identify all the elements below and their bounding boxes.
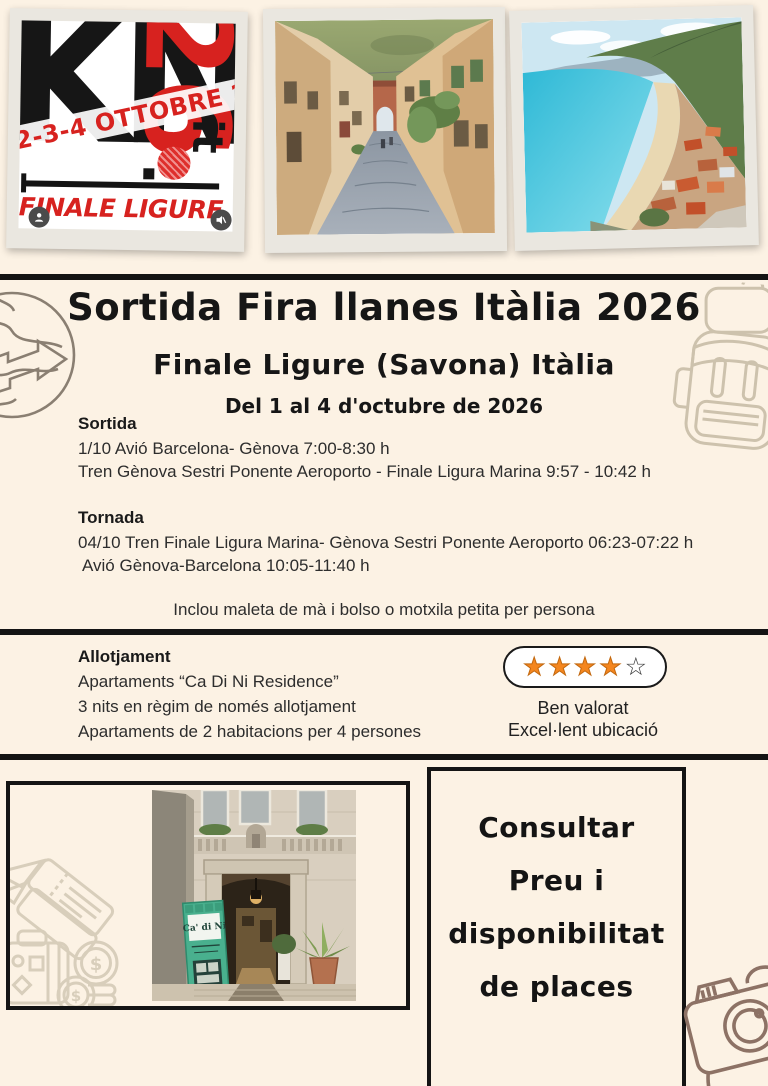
logo-location-text: FINALE LIGURE (SV) xyxy=(19,192,236,225)
street-photo xyxy=(275,19,495,235)
allotjament-heading: Allotjament xyxy=(78,647,171,667)
polaroid-logo: KN 26 it 2-3-4 OTTOBRE 2026 FINALE LIGUR… xyxy=(6,8,248,252)
dollar-icon: $ xyxy=(90,954,103,975)
luggage-note: Inclou maleta de mà i bolso o motxila pe… xyxy=(0,600,768,620)
divider-top xyxy=(0,274,768,280)
sortida-line-1: 1/10 Avió Barcelona- Gènova 7:00-8:30 h xyxy=(78,439,390,459)
polaroid-street xyxy=(263,7,507,253)
page-title: Sortida Fira llanes Itàlia 2026 xyxy=(0,286,768,329)
rating-caption-2: Excel·lent ubicació xyxy=(493,720,673,741)
tickets-money-doodle-icon: $ $ xyxy=(6,847,128,1010)
rating-pill: ★★★★☆ xyxy=(503,646,667,688)
cta-line-4: de places xyxy=(431,970,682,1003)
rating-stars: ★★★★☆ xyxy=(523,655,647,680)
tornada-line-2: Avió Gènova-Barcelona 10:05-11:40 h xyxy=(82,556,370,576)
hotel-entrance-photo: Ca' di Ni xyxy=(152,790,356,1001)
divider-middle xyxy=(0,629,768,635)
cta-line-2: Preu i xyxy=(431,864,682,897)
star-filled-icon: ★ xyxy=(599,655,621,680)
polaroid-beach xyxy=(509,5,759,251)
cta-line-1: Consultar xyxy=(431,811,682,844)
allotjament-line-2: 3 nits en règim de només allotjament xyxy=(78,697,356,717)
tornada-heading: Tornada xyxy=(78,508,144,528)
dollar-icon: $ xyxy=(71,987,81,1005)
knit-fair-logo: KN 26 it 2-3-4 OTTOBRE 2026 FINALE LIGUR… xyxy=(18,20,235,231)
tornada-line-1: 04/10 Tren Finale Ligura Marina- Gènova … xyxy=(78,533,693,553)
star-empty-icon: ☆ xyxy=(625,655,647,680)
page-subtitle: Finale Ligure (Savona) Itàlia xyxy=(0,348,768,381)
sortida-line-2: Tren Gènova Sestri Ponente Aeroporto - F… xyxy=(78,462,651,482)
beach-photo xyxy=(521,17,746,232)
sortida-heading: Sortida xyxy=(78,414,137,434)
speaker-muted-icon xyxy=(210,209,231,230)
star-filled-icon: ★ xyxy=(523,655,545,680)
divider-bottom xyxy=(0,754,768,760)
logo-it-letters: it xyxy=(186,119,229,154)
rating-caption-1: Ben valorat xyxy=(493,698,673,719)
allotjament-line-1: Apartaments “Ca Di Ni Residence” xyxy=(78,672,339,692)
allotjament-line-3: Apartaments de 2 habitacions per 4 perso… xyxy=(78,722,421,742)
star-filled-icon: ★ xyxy=(548,655,570,680)
person-icon xyxy=(28,206,49,227)
logo-dot xyxy=(143,168,154,179)
hotel-photo-box: $ $ xyxy=(6,781,410,1010)
cta-line-3: disponibilitat xyxy=(431,917,682,950)
star-filled-icon: ★ xyxy=(574,655,596,680)
cta-box: Consultar Preu i disponibilitat de place… xyxy=(427,767,686,1086)
flyer-page: KN 26 it 2-3-4 OTTOBRE 2026 FINALE LIGUR… xyxy=(0,0,768,1086)
